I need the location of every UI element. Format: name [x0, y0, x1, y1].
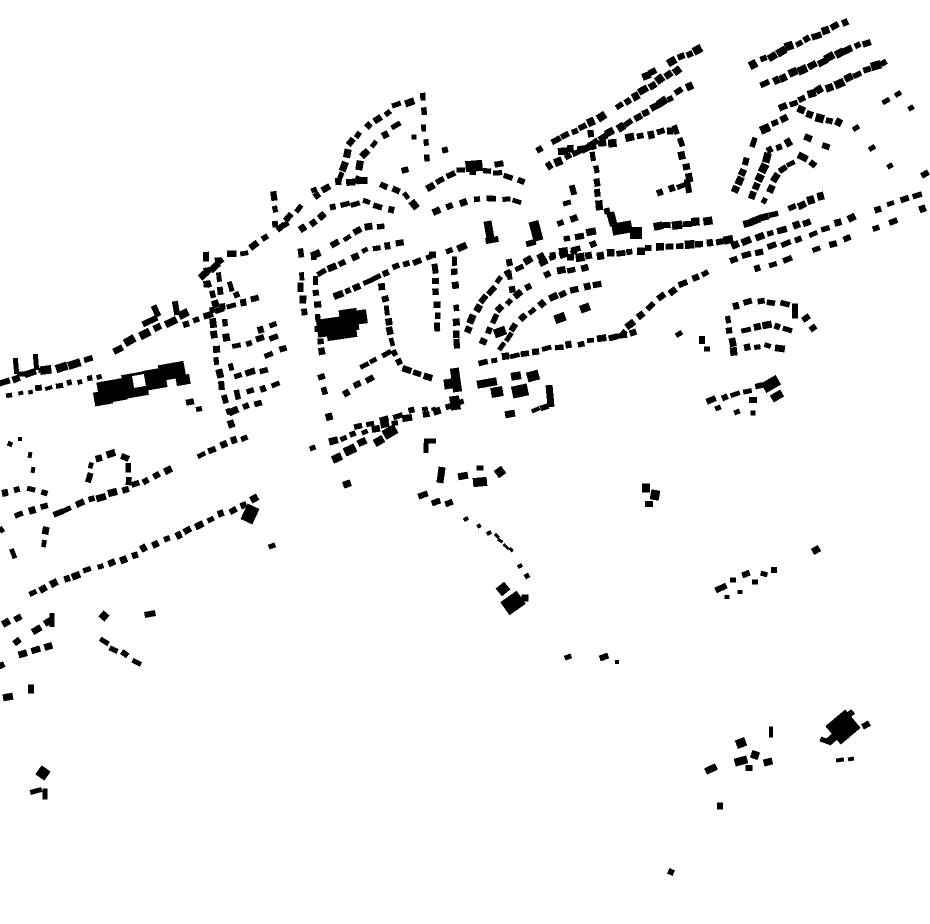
building-footprint-map	[0, 0, 930, 924]
map-viewport	[0, 0, 930, 924]
